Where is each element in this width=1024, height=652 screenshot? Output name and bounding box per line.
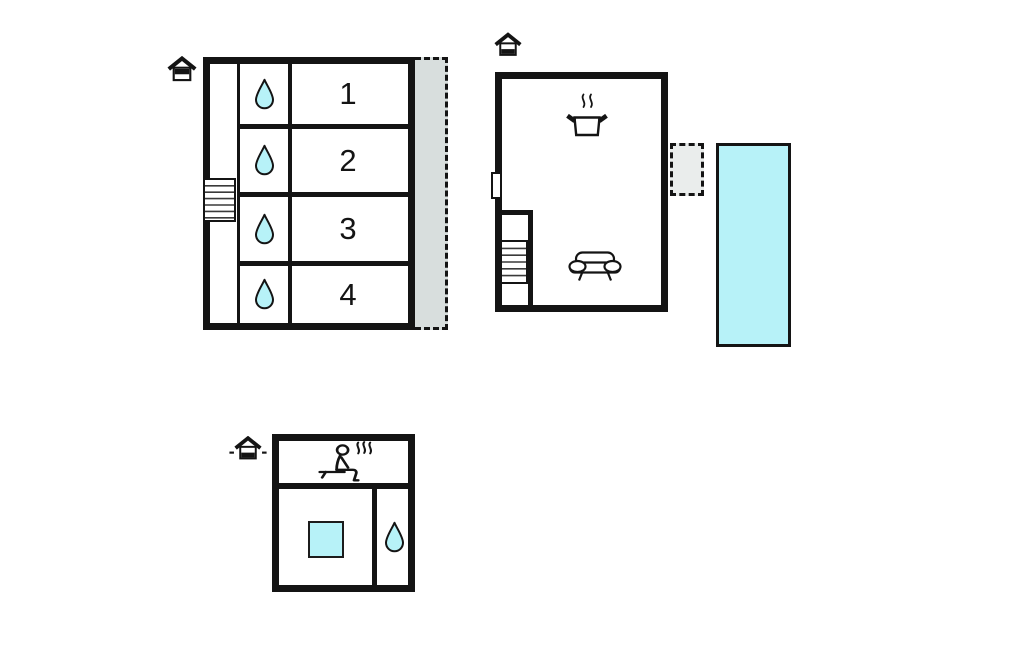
door-marker (491, 172, 502, 199)
room-number-label: 3 (288, 197, 408, 261)
room-row: 3 (240, 197, 408, 261)
entrance-porch (670, 143, 704, 196)
annex-divider-wall (279, 483, 408, 489)
water-drop-icon (254, 213, 275, 246)
bathroom-cell (240, 129, 288, 192)
room-row: 4 (240, 266, 408, 323)
sofa-icon (567, 248, 623, 282)
water-drop-icon (384, 521, 405, 554)
stairs-icon (203, 178, 236, 222)
main-house-building (495, 72, 668, 312)
cooking-pot-icon (565, 91, 609, 141)
water-drop-icon (254, 278, 275, 311)
balcony-terrace (415, 57, 448, 330)
swimming-pool (716, 143, 791, 347)
room-number-label: 1 (288, 64, 408, 124)
bedroom-wing-building: 1 2 3 4 (203, 57, 415, 330)
room-row: 2 (240, 129, 408, 192)
annex-floor-marker-icon (229, 436, 267, 461)
sauna-person-icon (318, 441, 378, 483)
bathroom-cell (240, 266, 288, 323)
water-drop-icon (254, 78, 275, 111)
room-number-label: 2 (288, 129, 408, 192)
ground-floor-marker-icon (494, 32, 522, 58)
floor-plan: 1 2 3 4 (0, 0, 1024, 652)
plunge-pool (308, 521, 344, 558)
room-row: 1 (240, 64, 408, 124)
annex-divider-wall (372, 489, 377, 585)
stair-compartment-wall (528, 210, 533, 305)
room-number-label: 4 (288, 266, 408, 323)
sauna-annex-building (272, 434, 415, 592)
upper-floor-marker-icon (167, 56, 197, 83)
bathroom-cell (240, 64, 288, 124)
bathroom-cell (240, 197, 288, 261)
water-drop-icon (254, 144, 275, 177)
stairs-icon (500, 240, 528, 284)
